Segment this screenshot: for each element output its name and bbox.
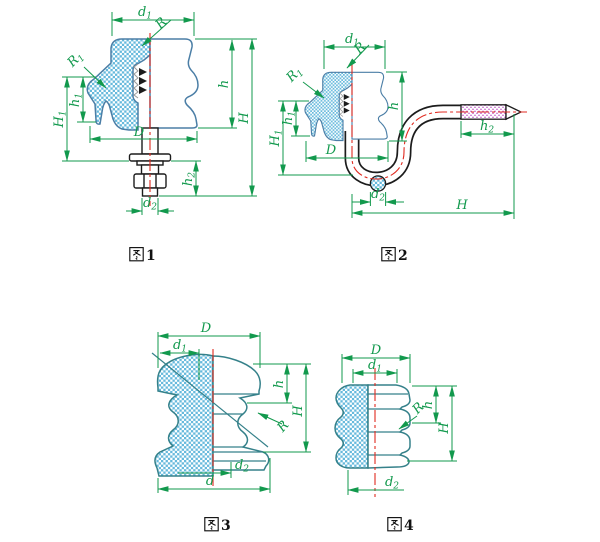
insulator-body [305,72,388,140]
spool-profile [213,356,269,470]
drawings-svg: d1 R R1 h1 H1 D h [0,0,600,542]
tu-glyph [130,248,143,261]
figure-number: 2 [398,248,408,264]
dim-label-D: D [325,143,337,158]
figure-number: 4 [404,518,414,534]
figure-2: d1 R R1 h1 H1 D h [268,32,527,264]
figure-4-caption: 4 [388,518,414,534]
tu-glyph [382,248,395,261]
dim-h2: h2 [171,161,201,196]
figure-3-caption: 3 [205,518,231,534]
dim-h: h [198,40,237,128]
dim-label-h2: h2 [480,119,494,136]
dim-label-R: R [274,418,293,436]
dim-d2: d2 [348,470,404,495]
dim-label-H: H [455,198,468,213]
dim-label-d1: d1 [138,5,152,22]
dim-label-D: D [370,343,382,358]
dim-label-H1: H1 [52,110,69,128]
dim-R1: R1 [64,49,106,88]
tu-glyph [205,518,218,531]
dim-d2: d2 [126,196,174,215]
bobbin-section [335,385,368,468]
dim-label-H: H [437,422,452,435]
dim-label-R1: R1 [283,64,306,87]
spool-section [155,354,213,476]
figure-1-caption: 1 [130,248,156,264]
dim-h2: h2 [461,114,514,219]
figure-number: 1 [146,248,156,264]
figure-4: D d1 h H R d2 4 [335,343,457,534]
dim-label-h2: h2 [181,172,198,186]
insulator-body [87,39,198,130]
dim-R1: R1 [283,64,324,98]
dim-label-d1: d1 [368,358,382,375]
dim-label-H: H [237,112,252,125]
dim-R: R [258,413,292,436]
dim-label-H: H [291,405,306,418]
figure-3: D d1 h H R d2 d [152,321,311,534]
dim-label-h: h [272,380,287,388]
dim-label-H1: H1 [268,129,285,147]
dim-label-D: D [200,321,212,336]
figure-number: 3 [221,518,231,534]
dim-label-h1: h1 [68,93,85,107]
dim-label-d: d [206,474,214,489]
dim-label-d2: d2 [143,196,157,213]
tu-glyph [388,518,401,531]
dim-label-h: h [387,102,402,110]
technical-drawing-canvas: d1 R R1 h1 H1 D h [0,0,600,542]
dim-label-R: R [152,15,170,33]
dim-label-D: D [133,125,145,140]
dim-label-d1: d1 [173,338,187,355]
dim-label-d2: d2 [385,475,399,492]
figure-1: d1 R R1 h1 H1 D h [52,5,257,264]
figure-2-caption: 2 [382,248,408,264]
dim-d2: d2 [352,187,404,206]
dim-label-h: h [217,80,232,88]
dim-label-R1: R1 [64,49,87,72]
